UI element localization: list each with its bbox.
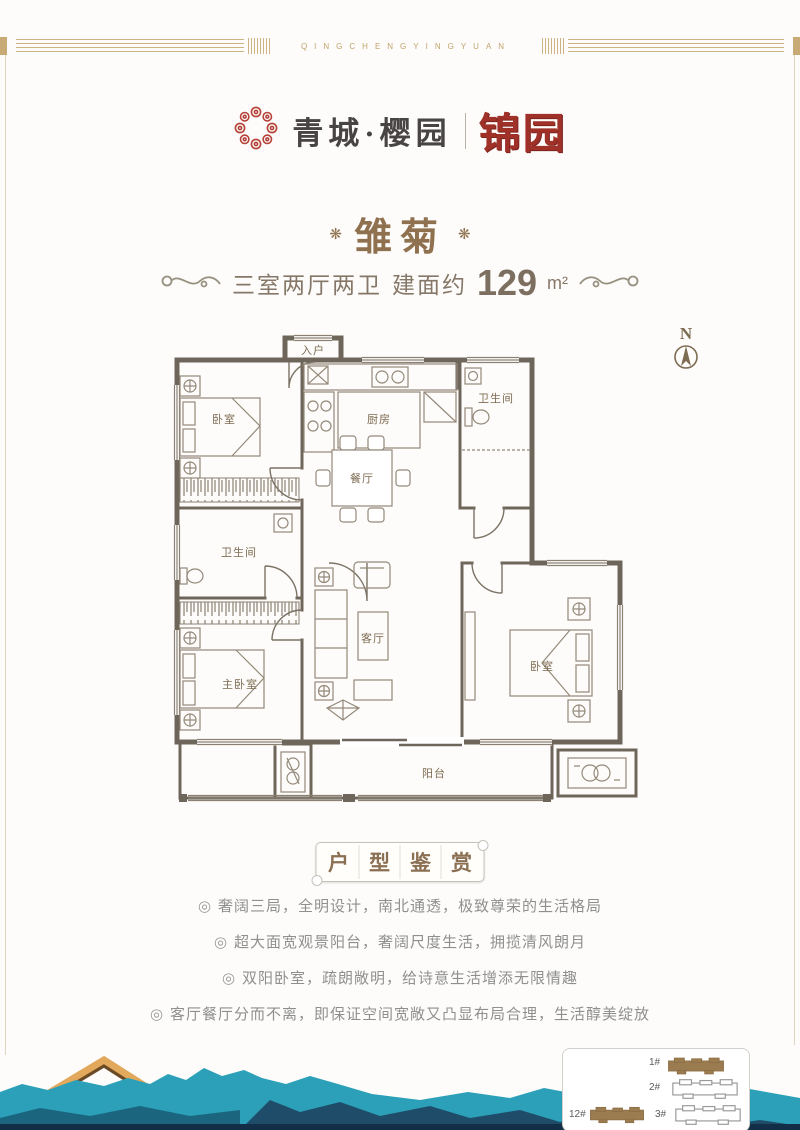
bullet-icon: ◎ — [214, 934, 228, 951]
band-hatch-left — [248, 38, 270, 54]
room-label-balcony: 阳台 — [422, 766, 446, 780]
room-label-bath-west: 卫生间 — [221, 545, 257, 559]
band-lines-left — [16, 39, 244, 53]
feature-item: ◎双阳卧室，疏朗敞明，给诗意生活增添无限情趣 — [0, 967, 800, 988]
flower-ornament-left: ❋ — [329, 225, 342, 243]
banner-char: 型 — [359, 845, 400, 879]
unit-title: 雏菊 — [354, 206, 446, 261]
north-label: N — [668, 326, 704, 342]
building-label-1: 1# — [649, 1057, 660, 1068]
feature-text: 双阳卧室，疏朗敞明，给诗意生活增添无限情趣 — [242, 970, 578, 987]
banner-char: 赏 — [441, 845, 482, 879]
building-label-12: 12# — [569, 1109, 586, 1120]
flower-ornament-right: ❋ — [458, 225, 471, 243]
band-hatch-right — [542, 38, 564, 54]
ac-unit-icons — [281, 752, 626, 792]
building-footprint-12 — [589, 1103, 645, 1127]
room-label-bedroom-east: 卧室 — [530, 659, 554, 673]
room-label-bath-north: 卫生间 — [478, 391, 514, 405]
bed-north-icon — [180, 376, 260, 478]
flourish-icon-right — [578, 270, 640, 297]
room-config: 三室两厅两卫 — [232, 266, 382, 300]
room-label-master: 主卧室 — [222, 677, 258, 691]
room-label-kitchen: 厨房 — [367, 413, 391, 426]
bullet-icon: ◎ — [222, 970, 236, 987]
room-label-living: 客厅 — [361, 631, 385, 645]
area-unit: m² — [547, 273, 568, 294]
wreath-icon — [233, 105, 279, 156]
feature-text: 奢阔三局，全明设计，南北通透，极致尊荣的生活格局 — [218, 898, 602, 915]
unit-title-row: ❋ 雏菊 ❋ — [0, 206, 800, 261]
north-compass: N — [668, 326, 704, 377]
building-footprint-2 — [667, 1078, 743, 1100]
room-label-entry: 入户 — [301, 343, 325, 357]
bath-north-icons — [462, 368, 530, 450]
banner-char: 鉴 — [400, 845, 441, 879]
feature-text: 超大面宽观景阳台，奢阔尺度生活，拥揽清风朗月 — [234, 934, 586, 951]
bullet-icon: ◎ — [198, 898, 212, 915]
building-label-2: 2# — [649, 1082, 660, 1093]
logo-divider — [465, 113, 466, 149]
floor-plan: 入户 卧室 厨房 卫生间 餐厅 卫生间 客厅 主卧室 卧室 阳台 — [162, 330, 642, 810]
building-label-3: 3# — [655, 1109, 666, 1120]
section-banner: 户 型 鉴 赏 — [316, 842, 485, 882]
project-subname: 锦园 — [479, 100, 567, 161]
project-name-latin: QINGCHENGYINGYUAN — [274, 42, 538, 51]
banner-char: 户 — [319, 845, 359, 879]
area-prefix: 建面约 — [392, 266, 467, 300]
room-label-bedroom-north: 卧室 — [212, 412, 236, 426]
flourish-icon-left — [160, 270, 222, 297]
room-label-dining: 餐厅 — [350, 471, 374, 485]
project-name: 青城·樱园 — [292, 108, 451, 153]
windows — [175, 336, 623, 803]
feature-item: ◎奢阔三局，全明设计，南北通透，极致尊荣的生活格局 — [0, 895, 800, 916]
feature-item: ◎超大面宽观景阳台，奢阔尺度生活，拥揽清风朗月 — [0, 931, 800, 952]
unit-subtitle-row: 三室两厅两卫 建面约 129 m² — [0, 262, 800, 304]
compass-icon — [671, 342, 701, 372]
site-plan-card: 1# 2# 12# 3# — [562, 1048, 750, 1130]
band-corner-left — [0, 37, 7, 55]
poster-page: QINGCHENGYINGYUAN 青城·樱园 锦园 — [0, 0, 800, 1130]
area-value: 129 — [477, 262, 537, 304]
balcony-slider-door — [340, 737, 464, 747]
bed-east-icon — [465, 598, 592, 722]
band-lines-right — [568, 39, 784, 53]
brand-logo: 青城·樱园 锦园 — [0, 100, 800, 161]
top-ornament-band: QINGCHENGYINGYUAN — [0, 37, 800, 55]
building-footprint-1 — [667, 1054, 725, 1078]
band-corner-right — [793, 37, 800, 55]
building-footprint-3 — [671, 1104, 745, 1126]
